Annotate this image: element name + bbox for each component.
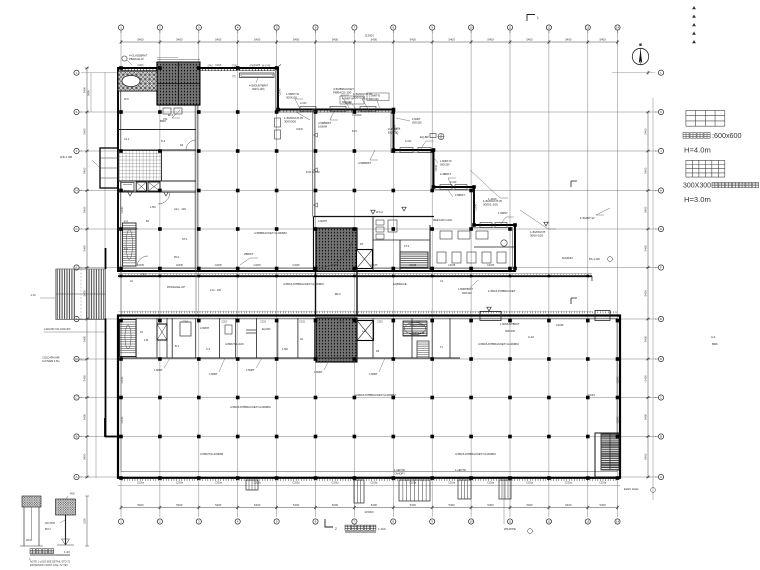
- svg-text:115000: 115000: [364, 510, 374, 514]
- svg-text:5400: 5400: [449, 38, 456, 42]
- svg-text:EQ-RM: EQ-RM: [262, 328, 270, 331]
- svg-text:1-5MNT: 1-5MNT: [314, 371, 323, 374]
- svg-text:C203: C203: [215, 64, 222, 67]
- svg-text:5400: 5400: [254, 503, 261, 507]
- svg-text:5400: 5400: [487, 503, 494, 507]
- svg-text:PBRACE-100: PBRACE-100: [333, 90, 352, 94]
- svg-text:1-5M: 1-5M: [282, 348, 288, 351]
- svg-text:1-5MNT: 1-5MNT: [154, 369, 163, 372]
- svg-text:300X300: 300X300: [284, 119, 296, 123]
- svg-text:MEET-RM 1x100: MEET-RM 1x100: [433, 219, 453, 222]
- svg-text:C203a: C203a: [448, 482, 456, 485]
- svg-text:1-5MNT: 1-5MNT: [209, 373, 218, 376]
- svg-text:100MM: 100MM: [318, 124, 328, 128]
- svg-text:B-1: B-1: [175, 345, 180, 348]
- svg-text:115000: 115000: [365, 34, 375, 38]
- svg-text:ANCHOR: ANCHOR: [45, 522, 55, 525]
- svg-text:AHU-1 RM: AHU-1 RM: [60, 156, 72, 159]
- svg-text:1-5MNT: 1-5MNT: [498, 211, 508, 215]
- svg-text:12: 12: [547, 26, 551, 30]
- svg-text:4-5MOUNTBRACKET/1x100MM: 4-5MOUNTBRACKET/1x100MM: [230, 405, 271, 409]
- svg-text:W.C-2: W.C-2: [376, 211, 384, 214]
- svg-text:D-2: D-2: [161, 139, 166, 143]
- svg-text:C2040: C2040: [476, 203, 478, 210]
- svg-text:4-GLASSBRKT: 4-GLASSBRKT: [129, 54, 148, 58]
- svg-text:A11 - 100: A11 - 100: [174, 207, 186, 211]
- svg-text:CANOPY: CANOPY: [394, 472, 405, 476]
- svg-text:BR-2: BR-2: [335, 293, 341, 296]
- svg-text:WALL: WALL: [26, 539, 33, 542]
- svg-text:5400: 5400: [176, 503, 183, 507]
- svg-text:1: 1: [537, 16, 539, 20]
- svg-text:300X100: 300X100: [505, 330, 516, 333]
- svg-text:5400: 5400: [176, 38, 183, 42]
- svg-text:D: D: [75, 357, 77, 361]
- svg-text:5400: 5400: [83, 245, 87, 252]
- svg-text:C-100A: C-100A: [352, 113, 362, 117]
- svg-text:C203a: C203a: [215, 482, 223, 485]
- svg-text:C203: C203: [254, 64, 261, 67]
- svg-text:5400: 5400: [293, 503, 300, 507]
- svg-text:ST-1: ST-1: [182, 237, 188, 241]
- svg-text:300X100: 300X100: [440, 163, 450, 166]
- svg-text:4-5MBRKT: 4-5MBRKT: [318, 121, 332, 125]
- svg-text:C203a: C203a: [526, 482, 534, 485]
- svg-text:-1.00: -1.00: [30, 294, 36, 297]
- svg-text:FT-2: FT-2: [404, 245, 410, 248]
- svg-text:1.4100: 1.4100: [488, 197, 497, 201]
- svg-text:C203: C203: [299, 322, 305, 324]
- svg-text:E: E: [76, 317, 78, 321]
- svg-text:C-10: C-10: [528, 335, 535, 339]
- svg-text:5400: 5400: [644, 375, 648, 382]
- svg-text:4-5MOUNTBRACKET/1x100MM: 4-5MOUNTBRACKET/1x100MM: [355, 393, 396, 397]
- svg-text:C2040: C2040: [618, 376, 620, 383]
- svg-text:PBRACE-W: PBRACE-W: [129, 57, 144, 61]
- svg-text:C203: C203: [137, 64, 144, 67]
- svg-text:A: A: [660, 475, 662, 479]
- svg-text:LOUVER 2.5m: LOUVER 2.5m: [42, 359, 61, 363]
- svg-text:4-5MOUNTBRACKET/1x100MM: 4-5MOUNTBRACKET/1x100MM: [283, 282, 324, 286]
- svg-text:5400: 5400: [644, 335, 648, 342]
- svg-text:5400: 5400: [83, 413, 87, 420]
- svg-text:5400: 5400: [565, 503, 572, 507]
- svg-text:BOLT: BOLT: [45, 529, 51, 531]
- svg-text:5400: 5400: [83, 86, 87, 93]
- svg-text:C203: C203: [222, 322, 228, 324]
- svg-text:M-MAIN: M-MAIN: [562, 256, 573, 260]
- svg-text:F: F: [660, 266, 662, 270]
- svg-text:5400: 5400: [371, 503, 378, 507]
- svg-text:1x100: 1x100: [450, 182, 457, 184]
- svg-text:1-1ENTR: 1-1ENTR: [394, 468, 405, 472]
- svg-text:300X-100: 300X-100: [530, 233, 543, 237]
- svg-text:5400: 5400: [332, 503, 339, 507]
- svg-text:2-4BRKT: 2-4BRKT: [440, 172, 451, 176]
- svg-text:2.M: 2.M: [144, 339, 148, 342]
- svg-text:4-5MNT/1x100MM: 4-5MNT/1x100MM: [200, 452, 224, 456]
- svg-text:5400: 5400: [644, 167, 648, 174]
- svg-text:PASSAGE-UP: PASSAGE-UP: [167, 285, 185, 289]
- svg-text:1-5MNT: 1-5MNT: [369, 373, 378, 376]
- svg-text:5400: 5400: [371, 38, 378, 42]
- svg-text:W-1745: W-1745: [262, 65, 271, 68]
- svg-text:1-5MOUNTBRACKET: 1-5MOUNTBRACKET: [488, 289, 516, 293]
- svg-text:1x100: 1x100: [405, 141, 412, 143]
- svg-text:300X100: 300X100: [369, 98, 379, 101]
- svg-text:B.M: B.M: [124, 189, 129, 193]
- svg-text:5400: 5400: [83, 206, 87, 213]
- svg-text:5400: 5400: [83, 335, 87, 342]
- svg-text:BRK: BRK: [712, 342, 718, 346]
- svg-text:1-5MNTBRKT: 1-5MNTBRKT: [458, 288, 474, 291]
- svg-text:C203: C203: [260, 322, 266, 324]
- svg-text:BS-1:100: BS-1:100: [589, 257, 600, 261]
- svg-text:2-4: 2-4: [124, 219, 128, 223]
- svg-text:C203a: C203a: [565, 482, 573, 485]
- svg-text:C2040: C2040: [122, 416, 124, 423]
- svg-text:DT: DT: [360, 242, 364, 246]
- svg-text:5400: 5400: [83, 167, 87, 174]
- svg-text:12: 12: [547, 520, 551, 524]
- svg-text:COLD-RM AIR: COLD-RM AIR: [42, 356, 60, 360]
- svg-text:5400: 5400: [449, 503, 456, 507]
- svg-text:C2035: C2035: [176, 264, 184, 267]
- svg-text:C203a: C203a: [137, 482, 145, 485]
- svg-text:C2035: C2035: [487, 264, 495, 267]
- svg-text:H: H: [660, 189, 662, 193]
- svg-text:2BRKT: 2BRKT: [244, 252, 254, 256]
- svg-text:300X100: 300X100: [462, 292, 472, 295]
- svg-text:300X1-100: 300X1-100: [483, 202, 498, 206]
- svg-text:3.M: 3.M: [163, 117, 167, 121]
- svg-text:5400: 5400: [644, 245, 648, 252]
- svg-text:C2040: C2040: [436, 164, 438, 171]
- svg-text:C203: C203: [338, 322, 344, 324]
- svg-text:C203: C203: [183, 322, 189, 324]
- svg-text:5400: 5400: [600, 503, 607, 507]
- svg-text:1-5MNT-W: 1-5MNT-W: [580, 216, 595, 220]
- svg-text:300X(-100): 300X(-100): [252, 88, 265, 91]
- svg-text:C2035: C2035: [293, 264, 301, 267]
- svg-text:C: C: [660, 396, 662, 400]
- svg-text:5400: 5400: [137, 503, 144, 507]
- svg-text:EQ-BR: EQ-BR: [420, 135, 429, 139]
- svg-text:1:100: 1:100: [378, 527, 386, 531]
- svg-text:10: 10: [470, 520, 474, 524]
- svg-text:K: K: [76, 110, 78, 114]
- svg-text:E: E: [660, 317, 662, 321]
- svg-text:(X): (X): [232, 75, 235, 78]
- svg-text:C203a: C203a: [370, 482, 378, 485]
- svg-text:EQBRACE: EQBRACE: [393, 282, 407, 286]
- svg-text:11: 11: [509, 26, 512, 30]
- svg-text:C2040: C2040: [618, 416, 620, 423]
- svg-text:K.1: K.1: [124, 247, 128, 251]
- svg-text:4-5MNT: 4-5MNT: [200, 327, 210, 330]
- svg-text:C203: C203: [176, 64, 183, 67]
- svg-text:1-5M: 1-5M: [150, 206, 155, 209]
- svg-text:C203: C203: [377, 322, 383, 324]
- svg-text:4-5MNTBRKT: 4-5MNTBRKT: [410, 324, 426, 327]
- svg-text:5400: 5400: [644, 413, 648, 420]
- svg-text:2x100: 2x100: [345, 103, 352, 105]
- svg-text:1x100: 1x100: [300, 103, 307, 105]
- svg-text:C244: C244: [588, 393, 595, 397]
- svg-text:5400: 5400: [87, 90, 91, 96]
- svg-text:1742: 1742: [207, 65, 213, 68]
- svg-text:4-5BRKT: 4-5BRKT: [455, 194, 465, 197]
- svg-text:W.C: W.C: [124, 97, 129, 101]
- svg-text:C203a: C203a: [331, 482, 339, 485]
- svg-text:5400: 5400: [644, 453, 648, 460]
- svg-text:5400: 5400: [526, 38, 533, 42]
- svg-text:H=4.0m: H=4.0m: [684, 146, 711, 155]
- svg-text:5400: 5400: [83, 128, 87, 135]
- svg-text:300X100: 300X100: [286, 95, 297, 99]
- svg-text:C2040: C2040: [395, 124, 397, 131]
- svg-text:5400: 5400: [254, 38, 261, 42]
- svg-text:G: G: [660, 227, 662, 231]
- svg-text:5400: 5400: [83, 375, 87, 382]
- svg-text:5400: 5400: [83, 290, 87, 297]
- svg-text:H=3.0m: H=3.0m: [684, 195, 711, 204]
- svg-text:4-5MNT/1x100: 4-5MNT/1x100: [225, 342, 244, 346]
- svg-text:EXPANSION JOINT J2GL-72 T93: EXPANSION JOINT J2GL-72 T93: [30, 564, 68, 567]
- svg-text:EQ-100: EQ-100: [388, 130, 399, 134]
- svg-text:14: 14: [616, 26, 620, 30]
- svg-text:C2035: C2035: [370, 264, 378, 267]
- svg-text:ELEV HALL: ELEV HALL: [624, 487, 639, 491]
- svg-text:2.11: 2.11: [141, 272, 146, 276]
- svg-text:4-5MBRACKET/1x100MM: 4-5MBRACKET/1x100MM: [254, 231, 287, 235]
- svg-text:B-22: B-22: [352, 131, 358, 133]
- svg-text:4-5MOUNTBRACKET/1x100MM: 4-5MOUNTBRACKET/1x100MM: [455, 452, 496, 456]
- svg-text:2: 2: [335, 527, 337, 531]
- svg-text:5400: 5400: [600, 38, 607, 42]
- svg-text:A-4: A-4: [711, 335, 716, 339]
- svg-text:4-5MOUNTBRACKET/1x100MM: 4-5MOUNTBRACKET/1x100MM: [478, 342, 519, 346]
- svg-text:1-5MNT-W: 1-5MNT-W: [286, 92, 299, 96]
- svg-text:C203a: C203a: [176, 482, 184, 485]
- svg-text:B: B: [660, 435, 662, 439]
- svg-text:C2040: C2040: [122, 376, 124, 383]
- svg-text:5400: 5400: [410, 503, 417, 507]
- svg-text:300X100: 300X100: [412, 121, 422, 124]
- svg-text:300X1-100: 300X1-100: [412, 332, 425, 335]
- svg-text:C2040: C2040: [296, 129, 303, 131]
- svg-text:5400: 5400: [293, 38, 300, 42]
- svg-text:C2035: C2035: [409, 264, 417, 267]
- svg-text:A1.1: A1.1: [124, 137, 130, 141]
- svg-text:1500: 1500: [84, 518, 87, 524]
- svg-text:5400: 5400: [526, 503, 533, 507]
- svg-text:300X300: 300X300: [683, 183, 711, 190]
- svg-text:2.11 - 100: 2.11 - 100: [210, 289, 222, 292]
- svg-text:5400: 5400: [410, 38, 417, 42]
- svg-text:14: 14: [616, 520, 620, 524]
- svg-text:PD-1: PD-1: [174, 256, 180, 259]
- svg-text:5400: 5400: [215, 503, 222, 507]
- svg-text:G: G: [75, 227, 77, 231]
- svg-text:13: 13: [586, 26, 590, 30]
- svg-text:C2035: C2035: [215, 264, 223, 267]
- svg-text:1-5MNT: 1-5MNT: [246, 369, 255, 372]
- svg-text:5400: 5400: [332, 38, 339, 42]
- svg-text:1420x300 340 1420x300: 1420x300 340 1420x300: [44, 328, 71, 331]
- svg-text:EL-1: EL-1: [168, 114, 174, 117]
- svg-text:1:20: 1:20: [64, 550, 70, 554]
- svg-text::600x600: :600x600: [712, 131, 742, 140]
- svg-text:11: 11: [509, 520, 512, 524]
- svg-text:5400: 5400: [644, 290, 648, 297]
- svg-text:5400: 5400: [215, 38, 222, 42]
- svg-text:LK: LK: [130, 280, 133, 283]
- svg-text:5400: 5400: [137, 38, 144, 42]
- svg-text:D: D: [660, 357, 662, 361]
- svg-text:5400: 5400: [83, 453, 87, 460]
- svg-text:C203a: C203a: [599, 482, 607, 485]
- svg-text:C2040: C2040: [280, 88, 282, 95]
- svg-text:1-5MOUNTBRKT: 1-5MOUNTBRKT: [500, 323, 520, 326]
- svg-text:5400: 5400: [644, 206, 648, 213]
- svg-text:C2035: C2035: [254, 264, 262, 267]
- svg-text:C: C: [75, 396, 77, 400]
- svg-text:C203a: C203a: [293, 482, 301, 485]
- svg-text:C2040: C2040: [122, 206, 124, 213]
- svg-text:PAD: PAD: [70, 493, 75, 496]
- svg-text:5400: 5400: [644, 128, 648, 135]
- svg-text:5400: 5400: [565, 38, 572, 42]
- svg-text:C2035: C2035: [556, 324, 564, 327]
- svg-text:L-3: L-3: [362, 330, 366, 333]
- svg-text:C203a: C203a: [487, 482, 495, 485]
- svg-text:5400: 5400: [487, 38, 494, 42]
- svg-text:4-5MNT: 4-5MNT: [318, 220, 328, 223]
- svg-text:13: 13: [586, 520, 590, 524]
- svg-text:C-3: C-3: [206, 348, 211, 351]
- svg-text:H: H: [75, 189, 77, 193]
- svg-text:C2035: C2035: [331, 264, 339, 267]
- svg-text:10: 10: [470, 26, 474, 30]
- svg-text:WS-PIPE: WS-PIPE: [504, 527, 516, 531]
- svg-text:1-1ENTR: 1-1ENTR: [455, 468, 466, 472]
- svg-text:C2035: C2035: [448, 264, 456, 267]
- svg-text:B: B: [76, 435, 78, 439]
- svg-text:4-5MBRKT: 4-5MBRKT: [358, 161, 372, 165]
- svg-text:B.08 41.17M: B.08 41.17M: [306, 171, 320, 174]
- svg-text:A: A: [76, 475, 78, 479]
- svg-text:K: K: [660, 110, 662, 114]
- svg-text:C2035: C2035: [137, 264, 145, 267]
